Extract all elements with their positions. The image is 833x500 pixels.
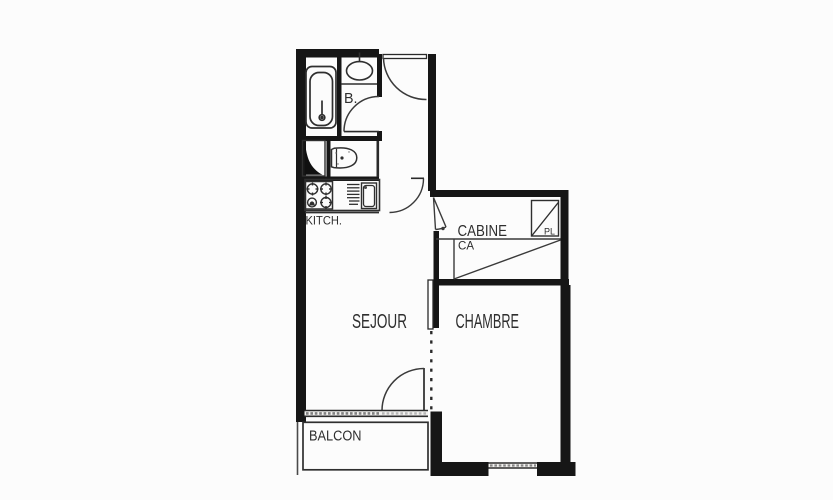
svg-text:CHAMBRE: CHAMBRE	[456, 311, 520, 333]
svg-text:PL: PL	[544, 226, 555, 236]
svg-text:BALCON: BALCON	[309, 427, 362, 444]
svg-text:B.: B.	[344, 90, 358, 107]
svg-text:KITCH.: KITCH.	[306, 215, 343, 228]
svg-text:CABINE: CABINE	[458, 223, 508, 240]
svg-text:CA: CA	[458, 239, 474, 253]
svg-text:SEJOUR: SEJOUR	[352, 311, 407, 333]
